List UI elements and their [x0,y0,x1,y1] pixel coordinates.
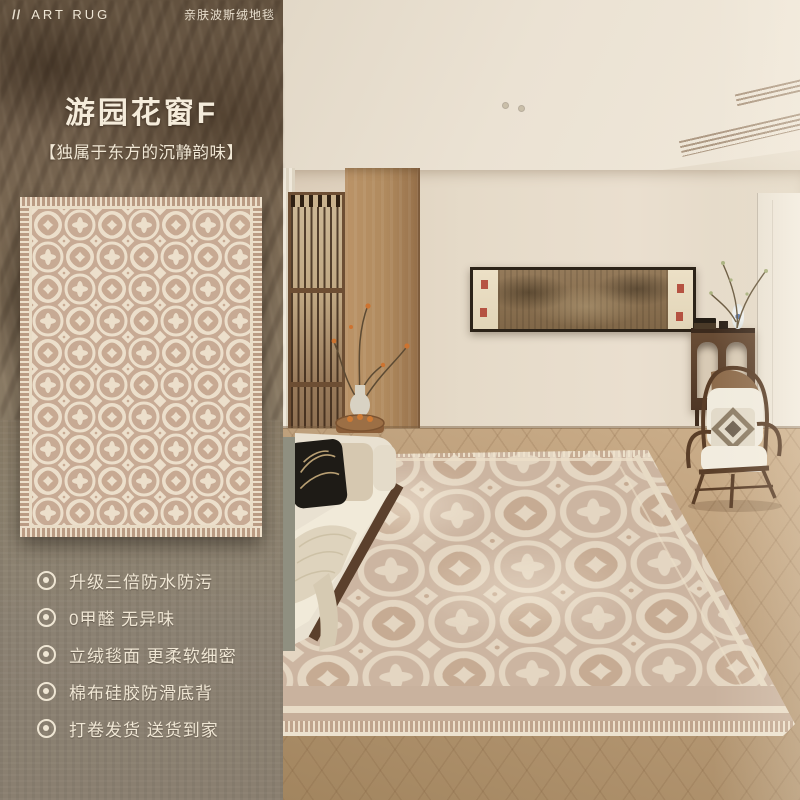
feature-label: 打卷发货 送货到家 [69,716,219,741]
lattice-top-squares [291,195,342,207]
scroll-painting-art [498,270,668,329]
swatch-fringe-left [20,206,29,528]
persimmon-branches [333,305,408,410]
scroll-end-left [473,270,498,329]
logo-slashes-icon: // [12,7,21,22]
feature-list: 升级三倍防水防污 0甲醛 无异味 立绒毯面 更柔软细密 棉布硅胶防滑底背 打卷发… [0,562,283,747]
list-item: 0甲醛 无异味 [0,599,283,636]
sofa-armrest [373,445,396,491]
double-circle-bullet-icon [37,682,56,701]
list-item: 立绒毯面 更柔软细密 [0,636,283,673]
swatch-fringe-right [253,206,262,528]
red-seal-icon [676,312,683,321]
rug-border-line-bottom [283,706,800,713]
plant-branch [703,242,783,328]
page-title: 游园花窗F [0,88,283,132]
double-circle-bullet-icon [37,645,56,664]
scroll-painting [470,267,696,332]
double-circle-bullet-icon [37,608,56,627]
side-wall-strip [283,437,295,651]
product-tagline: 亲肤波斯绒地毯 [184,6,275,23]
swatch-pattern-field [29,206,253,528]
feature-label: 立绒毯面 更柔软细密 [69,642,237,667]
swatch-fringe-top [20,197,262,206]
black-leaf-pillow [288,438,349,509]
ceiling-spot-icon [503,103,508,108]
feature-label: 升级三倍防水防污 [69,568,213,593]
rug-band-bottom [283,713,800,721]
sofa [283,423,418,673]
list-item: 打卷发货 送货到家 [0,710,283,747]
red-seal-icon [480,308,487,317]
panel-header: // ART RUG 亲肤波斯绒地毯 [0,6,283,23]
rug-swatch-image [20,197,262,537]
living-room-photo [283,0,800,800]
red-seal-icon [481,280,488,289]
chair-shadow [688,500,782,512]
tray-vase-decor [313,285,413,445]
info-panel: // ART RUG 亲肤波斯绒地毯 游园花窗F 【独属于东方的沉静韵味】 [0,0,283,800]
ceramic-vase [350,393,370,417]
swatch-pattern [32,209,250,525]
feature-label: 棉布硅胶防滑底背 [69,679,213,704]
rattan-armchair [675,358,787,513]
rug-fringe-bottom [283,721,800,732]
list-item: 棉布硅胶防滑底背 [0,673,283,710]
scroll-end-right [668,270,693,329]
rug-edge-cord [283,732,800,736]
product-poster: // ART RUG 亲肤波斯绒地毯 游园花窗F 【独属于东方的沉静韵味】 [0,0,800,800]
ceiling-spot-icon [519,106,524,111]
double-circle-bullet-icon [37,571,56,590]
red-seal-icon [677,284,684,293]
sunlight-patch [403,540,643,640]
feature-label: 0甲醛 无异味 [69,605,175,630]
list-item: 升级三倍防水防污 [0,562,283,599]
brand-name: ART RUG [31,7,110,22]
page-subtitle: 【独属于东方的沉静韵味】 [0,139,283,163]
rug-plain-band [283,686,800,706]
double-circle-bullet-icon [37,719,56,738]
brand-logo: // ART RUG [12,7,110,22]
